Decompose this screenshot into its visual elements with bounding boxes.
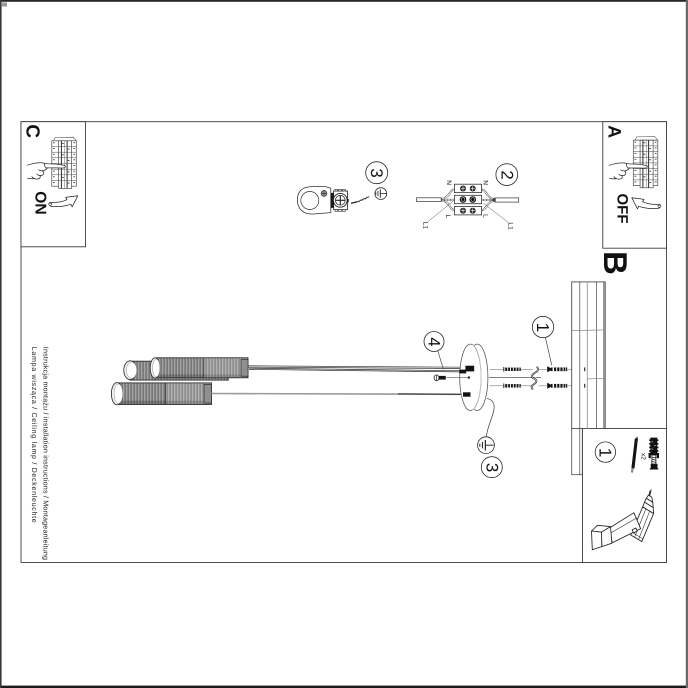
svg-text:4: 4 <box>425 337 444 346</box>
svg-text:L: L <box>482 214 489 218</box>
svg-text:Lampa wisząca / Ceiling lamp /: Lampa wisząca / Ceiling lamp / Deckenleu… <box>30 347 38 524</box>
svg-text:2: 2 <box>497 170 516 179</box>
svg-text:ON: ON <box>31 191 48 214</box>
svg-text:C: C <box>22 124 43 138</box>
svg-text:N: N <box>482 180 489 185</box>
svg-text:OFF: OFF <box>614 194 631 224</box>
svg-text:3: 3 <box>367 168 386 177</box>
svg-text:L1: L1 <box>506 222 513 230</box>
svg-text:L: L <box>444 215 451 219</box>
svg-text:Instrukcja montażu / installat: Instrukcja montażu / installation instru… <box>42 347 50 560</box>
svg-text:N: N <box>445 180 452 185</box>
svg-text:A: A <box>605 125 625 138</box>
svg-text:1: 1 <box>595 448 615 458</box>
svg-text:1: 1 <box>533 323 553 333</box>
svg-text:x2: x2 <box>640 453 647 460</box>
svg-text:L1: L1 <box>421 222 428 230</box>
svg-text:3: 3 <box>482 463 501 472</box>
svg-text:B: B <box>597 251 634 275</box>
